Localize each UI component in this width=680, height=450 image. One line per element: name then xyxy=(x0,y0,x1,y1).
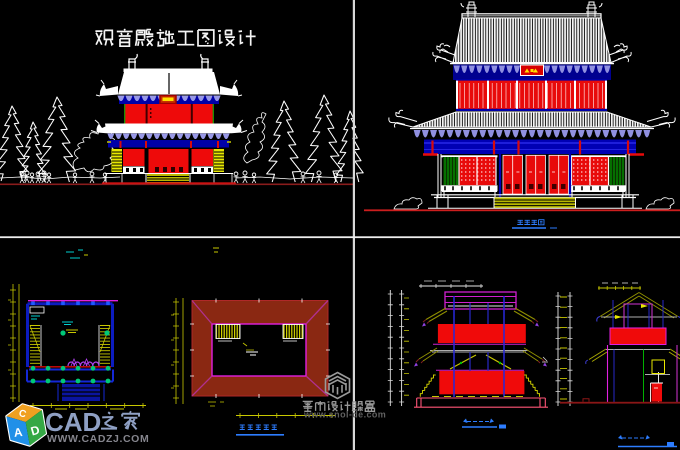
svg-text:www.snol-de.com: www.snol-de.com xyxy=(303,410,386,420)
svg-text:A: A xyxy=(13,425,23,440)
svg-text:WWW.CADZJ.COM: WWW.CADZJ.COM xyxy=(47,433,149,445)
